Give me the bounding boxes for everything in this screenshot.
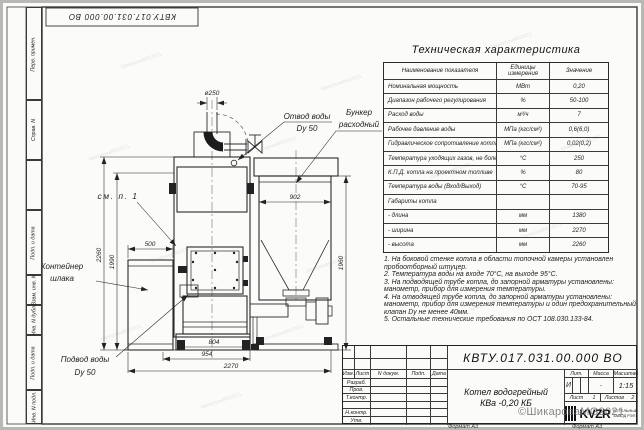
spec-unit: % [497,94,550,108]
spec-value: 7 [550,109,608,123]
lit-value: И [565,378,573,394]
side-cell-vzam-inv: Взам. инв. N [26,275,42,305]
label-bunker: Бункер [346,108,373,117]
label-see-note: см. п. 1 [98,191,139,201]
row-tkontr: Т.контр. [343,394,371,402]
spec-name: Габариты котла [384,195,497,209]
side-cell-empty [26,160,42,210]
note-line: манометр, прибор для измерения температу… [384,301,636,309]
spec-row: Диапазон рабочего регулирования%50-100 [384,94,608,108]
format-label-2: Формат А3 [572,424,602,430]
spec-name: Диапазон рабочего регулирования [384,94,497,108]
spec-header-unit: Единицы измерения [497,63,550,80]
col-izm: Изм. [343,370,355,379]
label-water-inlet: Подвод воды [61,355,110,364]
spec-unit: МПа (кгс/см²) [497,138,550,152]
note-line: 1. На боковой стенке котла в области топ… [384,256,636,264]
sheet-number-cell: Лист 1 [565,394,601,402]
drawing-sheet: ШикароваMG2021 ШикароваMG2021 ШикароваMG… [0,0,644,430]
label-slag-container: Контейнер [41,262,84,271]
scale-header: Масштаб [614,370,638,378]
spec-header-name: Наименование показателя [384,63,497,80]
spec-row: Температура уходящих газов, не более°С25… [384,152,608,166]
spec-name: Расход воды [384,109,497,123]
top-stamp-text: КВТУ.017.031.00.000 ВО [68,12,176,21]
label-water-inlet-dy: Dy 50 [75,368,96,377]
spec-name: Рабочее давление воды [384,123,497,137]
label-water-outlet-dy: Dy 50 [297,124,318,133]
spec-unit: °С [497,152,550,166]
side-label: Инв. N дубл. [31,305,37,336]
label-bunker-2: расходный [338,120,380,129]
side-cell-perv-primen: Перв. примен. [26,7,42,100]
side-label: Взам. инв. N [31,275,37,306]
lit-header: Лит. [565,370,589,378]
note-line: 5. Остальные технические требования по О… [384,316,636,324]
sheet-value: 1 [592,395,595,401]
dim-mid-width: 954 [202,351,213,358]
fuel-bunker [124,158,338,350]
note-line: 2. Температура воды на входе 70°С, на вы… [384,271,636,279]
sheets-total-cell: Листов 2 [601,394,638,402]
scale-value: 1:15 [614,378,638,394]
spec-unit: °С [497,181,550,195]
spec-name: - длина [384,210,497,224]
spec-value: 0,20 [550,80,608,94]
spec-value: 70-95 [550,181,608,195]
spec-value: 80 [550,166,608,180]
side-cell-sprav-n: Справ. N [26,100,42,160]
side-label: Справ. N [31,119,37,141]
col-podp: Подп. [407,370,431,379]
note-line: клапан Dy не менее 40мм. [384,309,636,317]
dim-skid-width: 804 [209,339,220,346]
dim-total-width: 2270 [223,363,239,370]
boiler-details [169,183,254,350]
technical-notes: 1. На боковой стенке котла в области топ… [384,256,636,324]
row-nkontr: Н.контр. [343,409,371,417]
side-cell-inv-dubl: Инв. N дубл. [26,305,42,335]
mass-header: Масса [589,370,614,378]
dimension-lines [100,97,351,373]
spec-unit: м³/ч [497,109,550,123]
mass-value: - [589,378,614,394]
side-cell-inv-podl: Инв. N подл. [26,390,42,424]
dim-total-height: 2260 [96,247,103,263]
designation: КВТУ.017.031.00.000 ВО [448,346,638,370]
spec-name: - высота [384,238,497,251]
sheet-label: Лист [570,395,584,401]
note-line: 3. На подводящей трубе котла, до запорно… [384,279,636,287]
spec-unit: МВт [497,80,550,94]
spec-row: Рабочее давление водыМПа (кгс/см²)0,6(6,… [384,123,608,137]
spec-unit: % [497,166,550,180]
col-ndocum: N докум. [371,370,407,379]
spec-unit: МПа (кгс/см²) [497,123,550,137]
spec-row: Номинальная мощностьМВт0,20 [384,80,608,94]
spec-row: - длинамм1380 [384,210,608,224]
watermark-signature: ©ШикароваMG2021 [518,406,624,418]
sheets-label: Листов [605,395,624,401]
dim-body-height: 1990 [109,254,116,269]
format-label: Формат А3 [448,424,478,430]
col-data: Дата [431,370,448,379]
dim-slag-width: 500 [145,241,156,248]
spec-name: Номинальная мощность [384,80,497,94]
spec-value [550,195,608,209]
spec-header-row: Наименование показателя Единицы измерени… [384,63,608,80]
spec-row: К.П.Д. котла на проектном топливе%80 [384,166,608,180]
spec-name: Гидравлическое сопротивление котла [384,138,497,152]
side-cell-podp-data: Подп. и дата [26,210,42,275]
side-label: Подп. и дата [31,226,37,259]
label-water-outlet: Отвод воды [284,112,331,121]
top-stamp: КВТУ.017.031.00.000 ВО [46,8,198,26]
spec-row: Габариты котла [384,195,608,209]
spec-value: 2260 [550,238,608,251]
side-label: Инв. N подл. [31,392,37,423]
spec-table: Наименование показателя Единицы измерени… [383,62,609,253]
spec-unit [497,195,550,209]
spec-unit: мм [497,210,550,224]
side-label: Подп. и дата [31,346,37,379]
doc-name-line1: Котел водогрейный [464,387,548,398]
spec-row: Температура воды (Вход/Выход)°С70-95 [384,181,608,195]
spec-name: Температура уходящих газов, не более [384,152,497,166]
side-cell-podp-data-2: Подп. и дата [26,335,42,390]
label-slag-container-2: шлака [50,274,74,283]
row-empty [343,402,371,409]
row-razrab: Разраб. [343,379,371,387]
sheets-value: 2 [631,395,634,401]
spec-name: - ширина [384,224,497,238]
side-label: Перв. примен. [31,36,37,71]
spec-value: 50-100 [550,94,608,108]
dim-bunker-width: 902 [290,194,301,201]
spec-header-value: Значение [550,63,608,80]
dim-chimney: ø250 [205,90,220,97]
row-prov: Пров. [343,387,371,394]
slag-container [128,260,173,350]
spec-row: - высотамм2260 [384,238,608,251]
spec-row: Расход водым³/ч7 [384,109,608,123]
spec-name: Температура воды (Вход/Выход) [384,181,497,195]
spec-unit: мм [497,238,550,251]
note-line: манометр, прибор для измерения температу… [384,286,636,294]
note-line: пробоотборный штуцер. [384,264,636,272]
sampling-port-marker [231,160,237,166]
spec-row: - ширинамм2270 [384,224,608,238]
row-utv: Утв. [343,417,371,425]
col-list: Лист [355,370,371,379]
spec-value: 250 [550,152,608,166]
chimney-pipe [194,112,262,166]
